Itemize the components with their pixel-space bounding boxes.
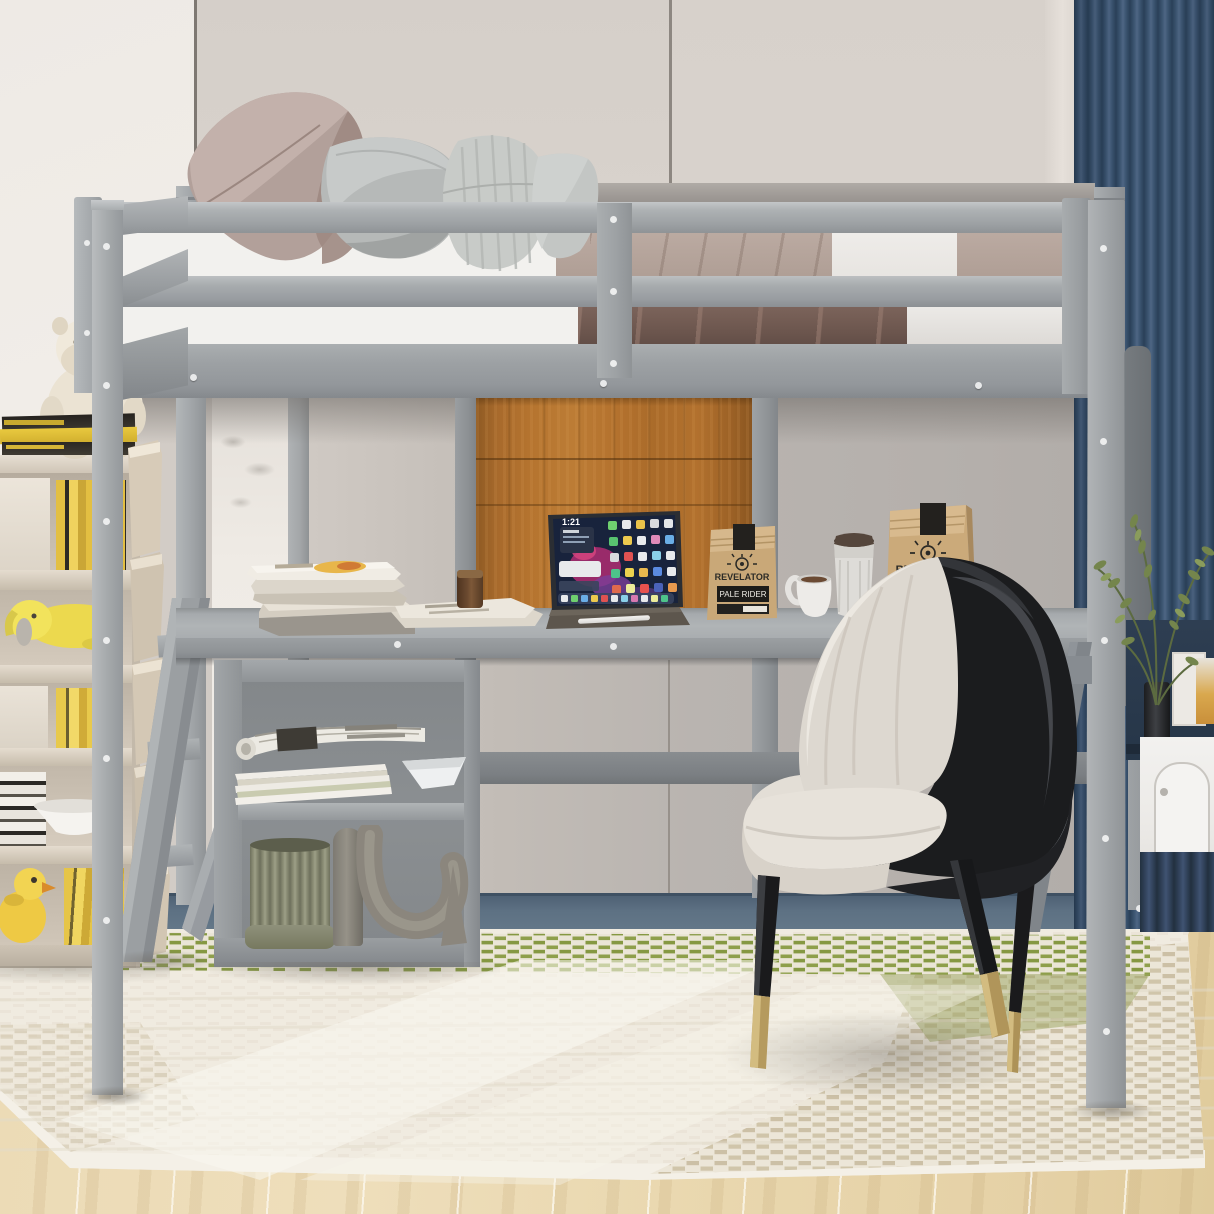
svg-text:1:21: 1:21 — [562, 517, 580, 527]
